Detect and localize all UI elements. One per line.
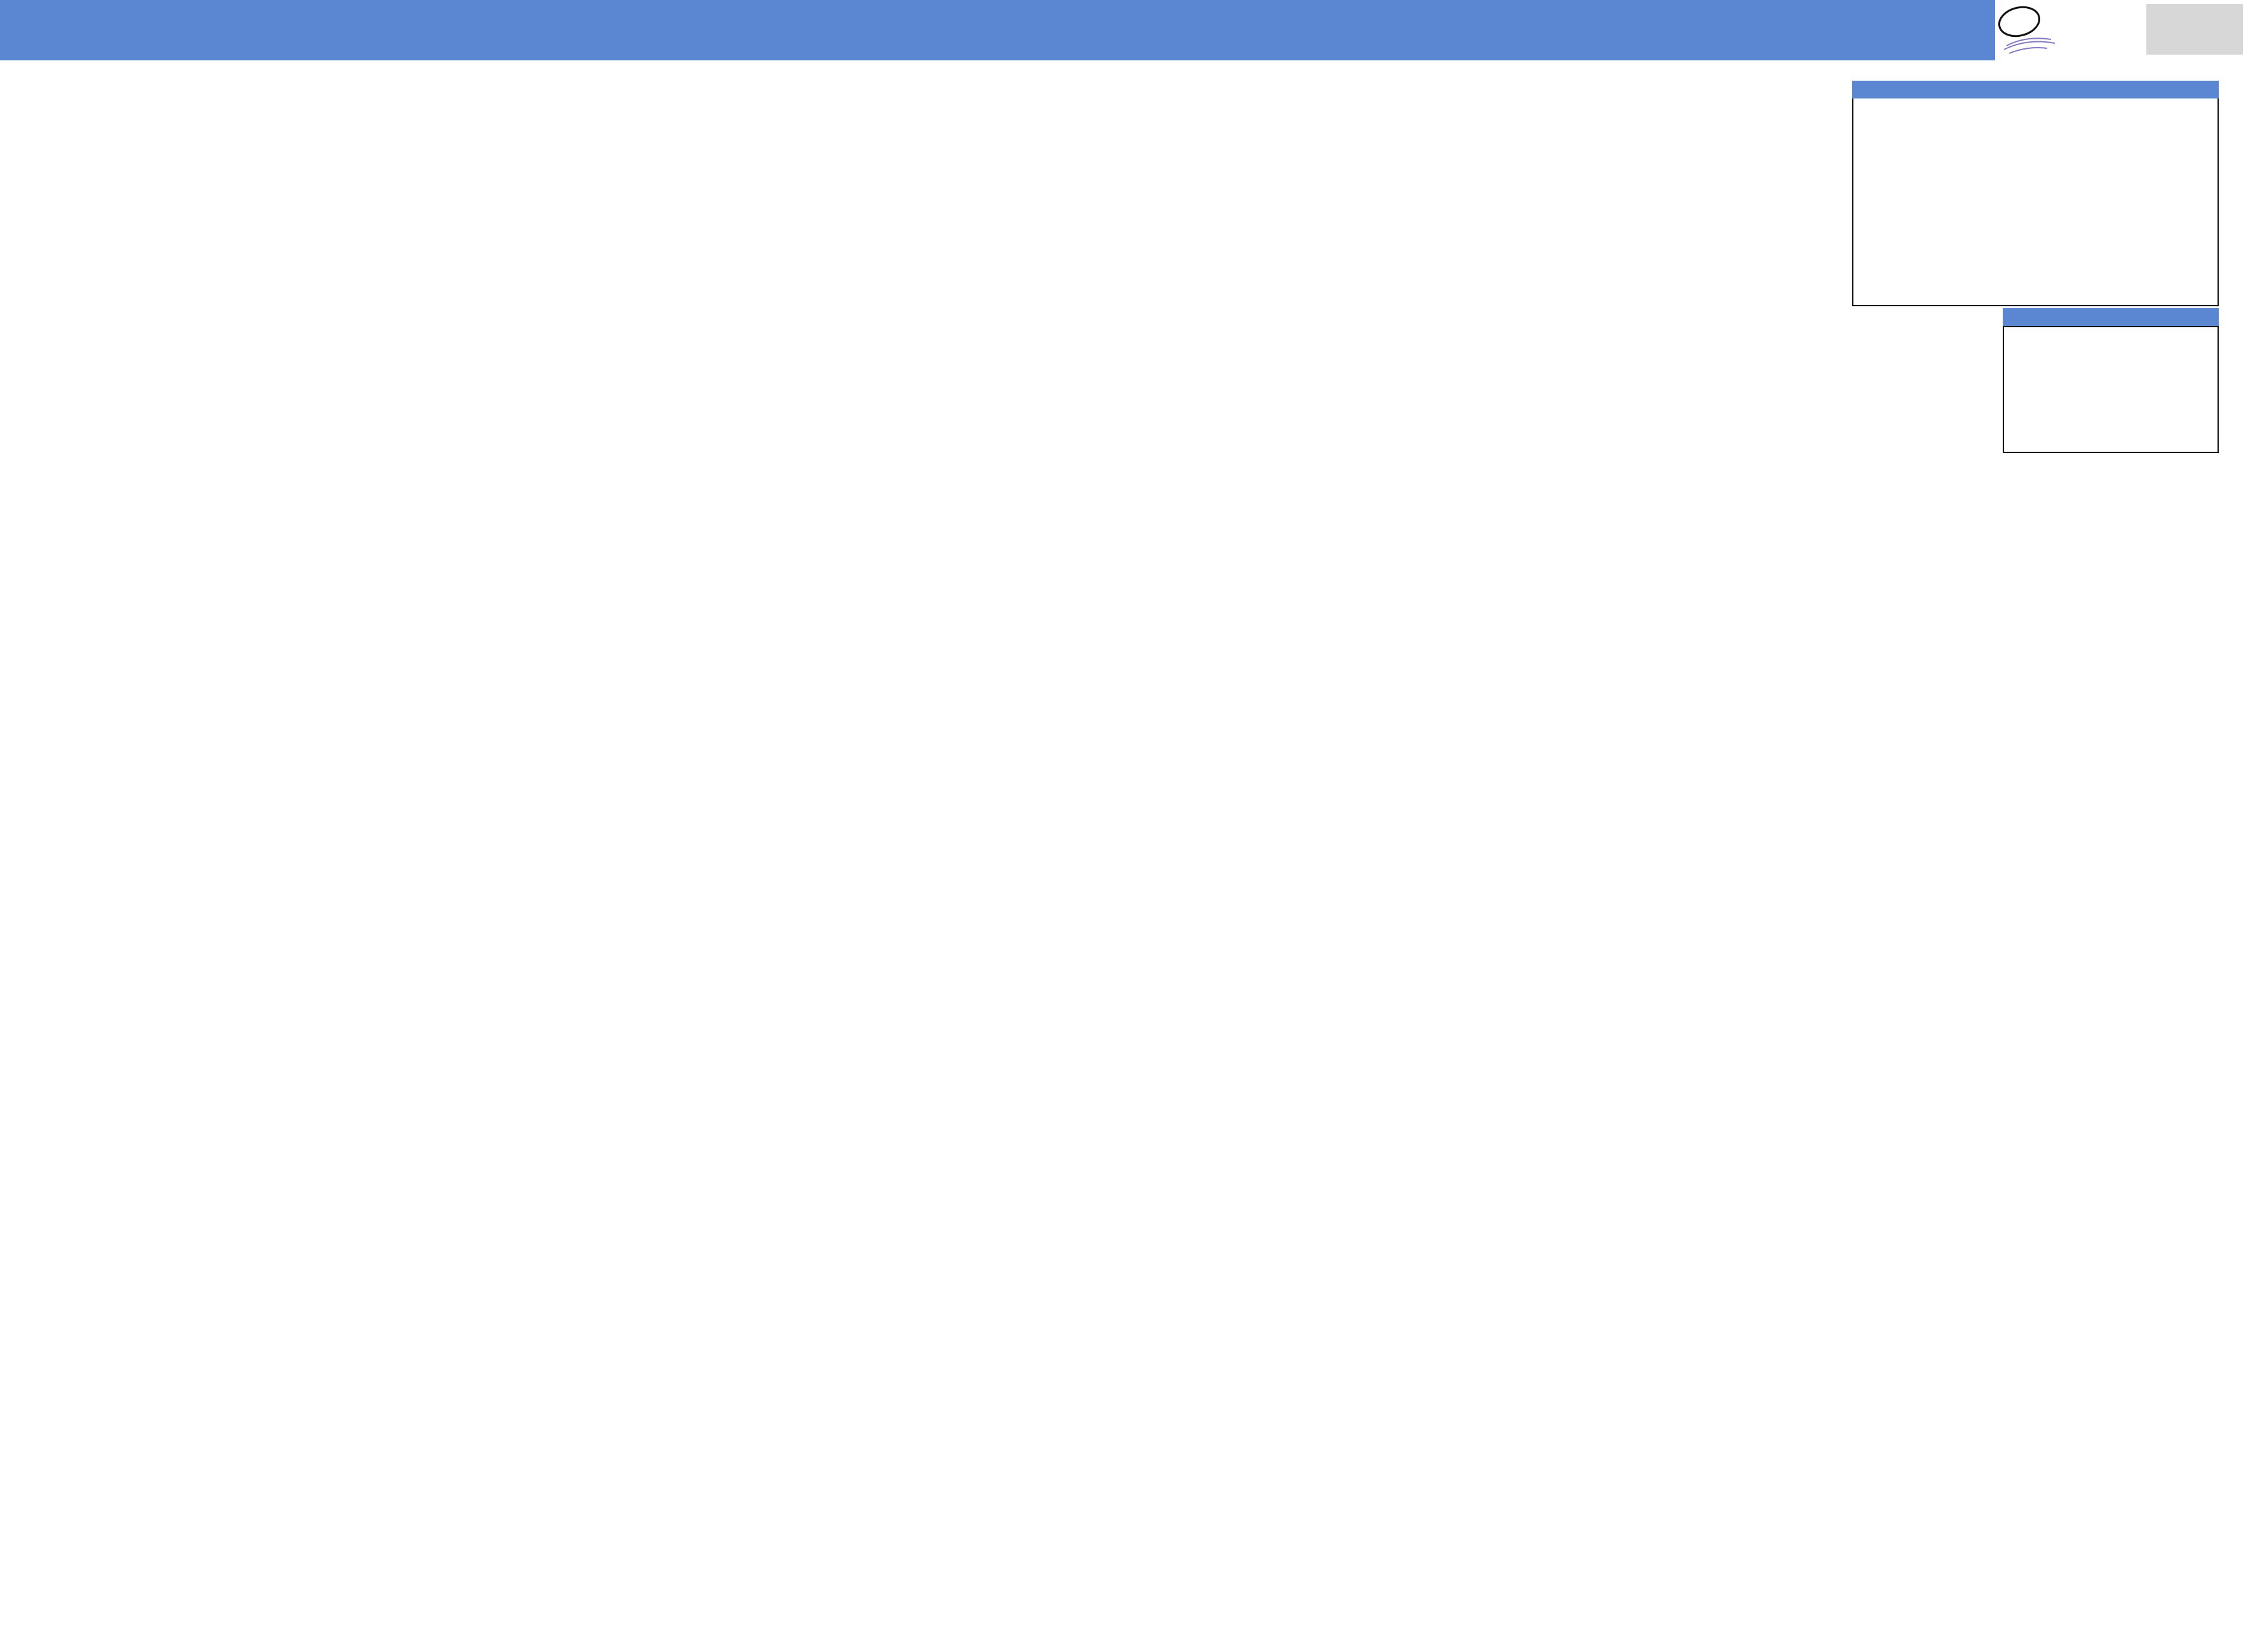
logo-art [1995, 0, 2148, 60]
page: { "header": { "title": "BARBER COUNTY, K… [0, 0, 2248, 1652]
zip-index [2003, 308, 2219, 454]
contact-box [2146, 4, 2243, 55]
legend-title [1852, 81, 2219, 98]
zip-index-title [2003, 308, 2219, 326]
marketmaps-logo [1995, 0, 2248, 60]
logo-scribble [2004, 38, 2055, 53]
zip-index-body [2003, 326, 2219, 453]
map-legend [1852, 81, 2219, 306]
header-bar [0, 0, 1995, 60]
